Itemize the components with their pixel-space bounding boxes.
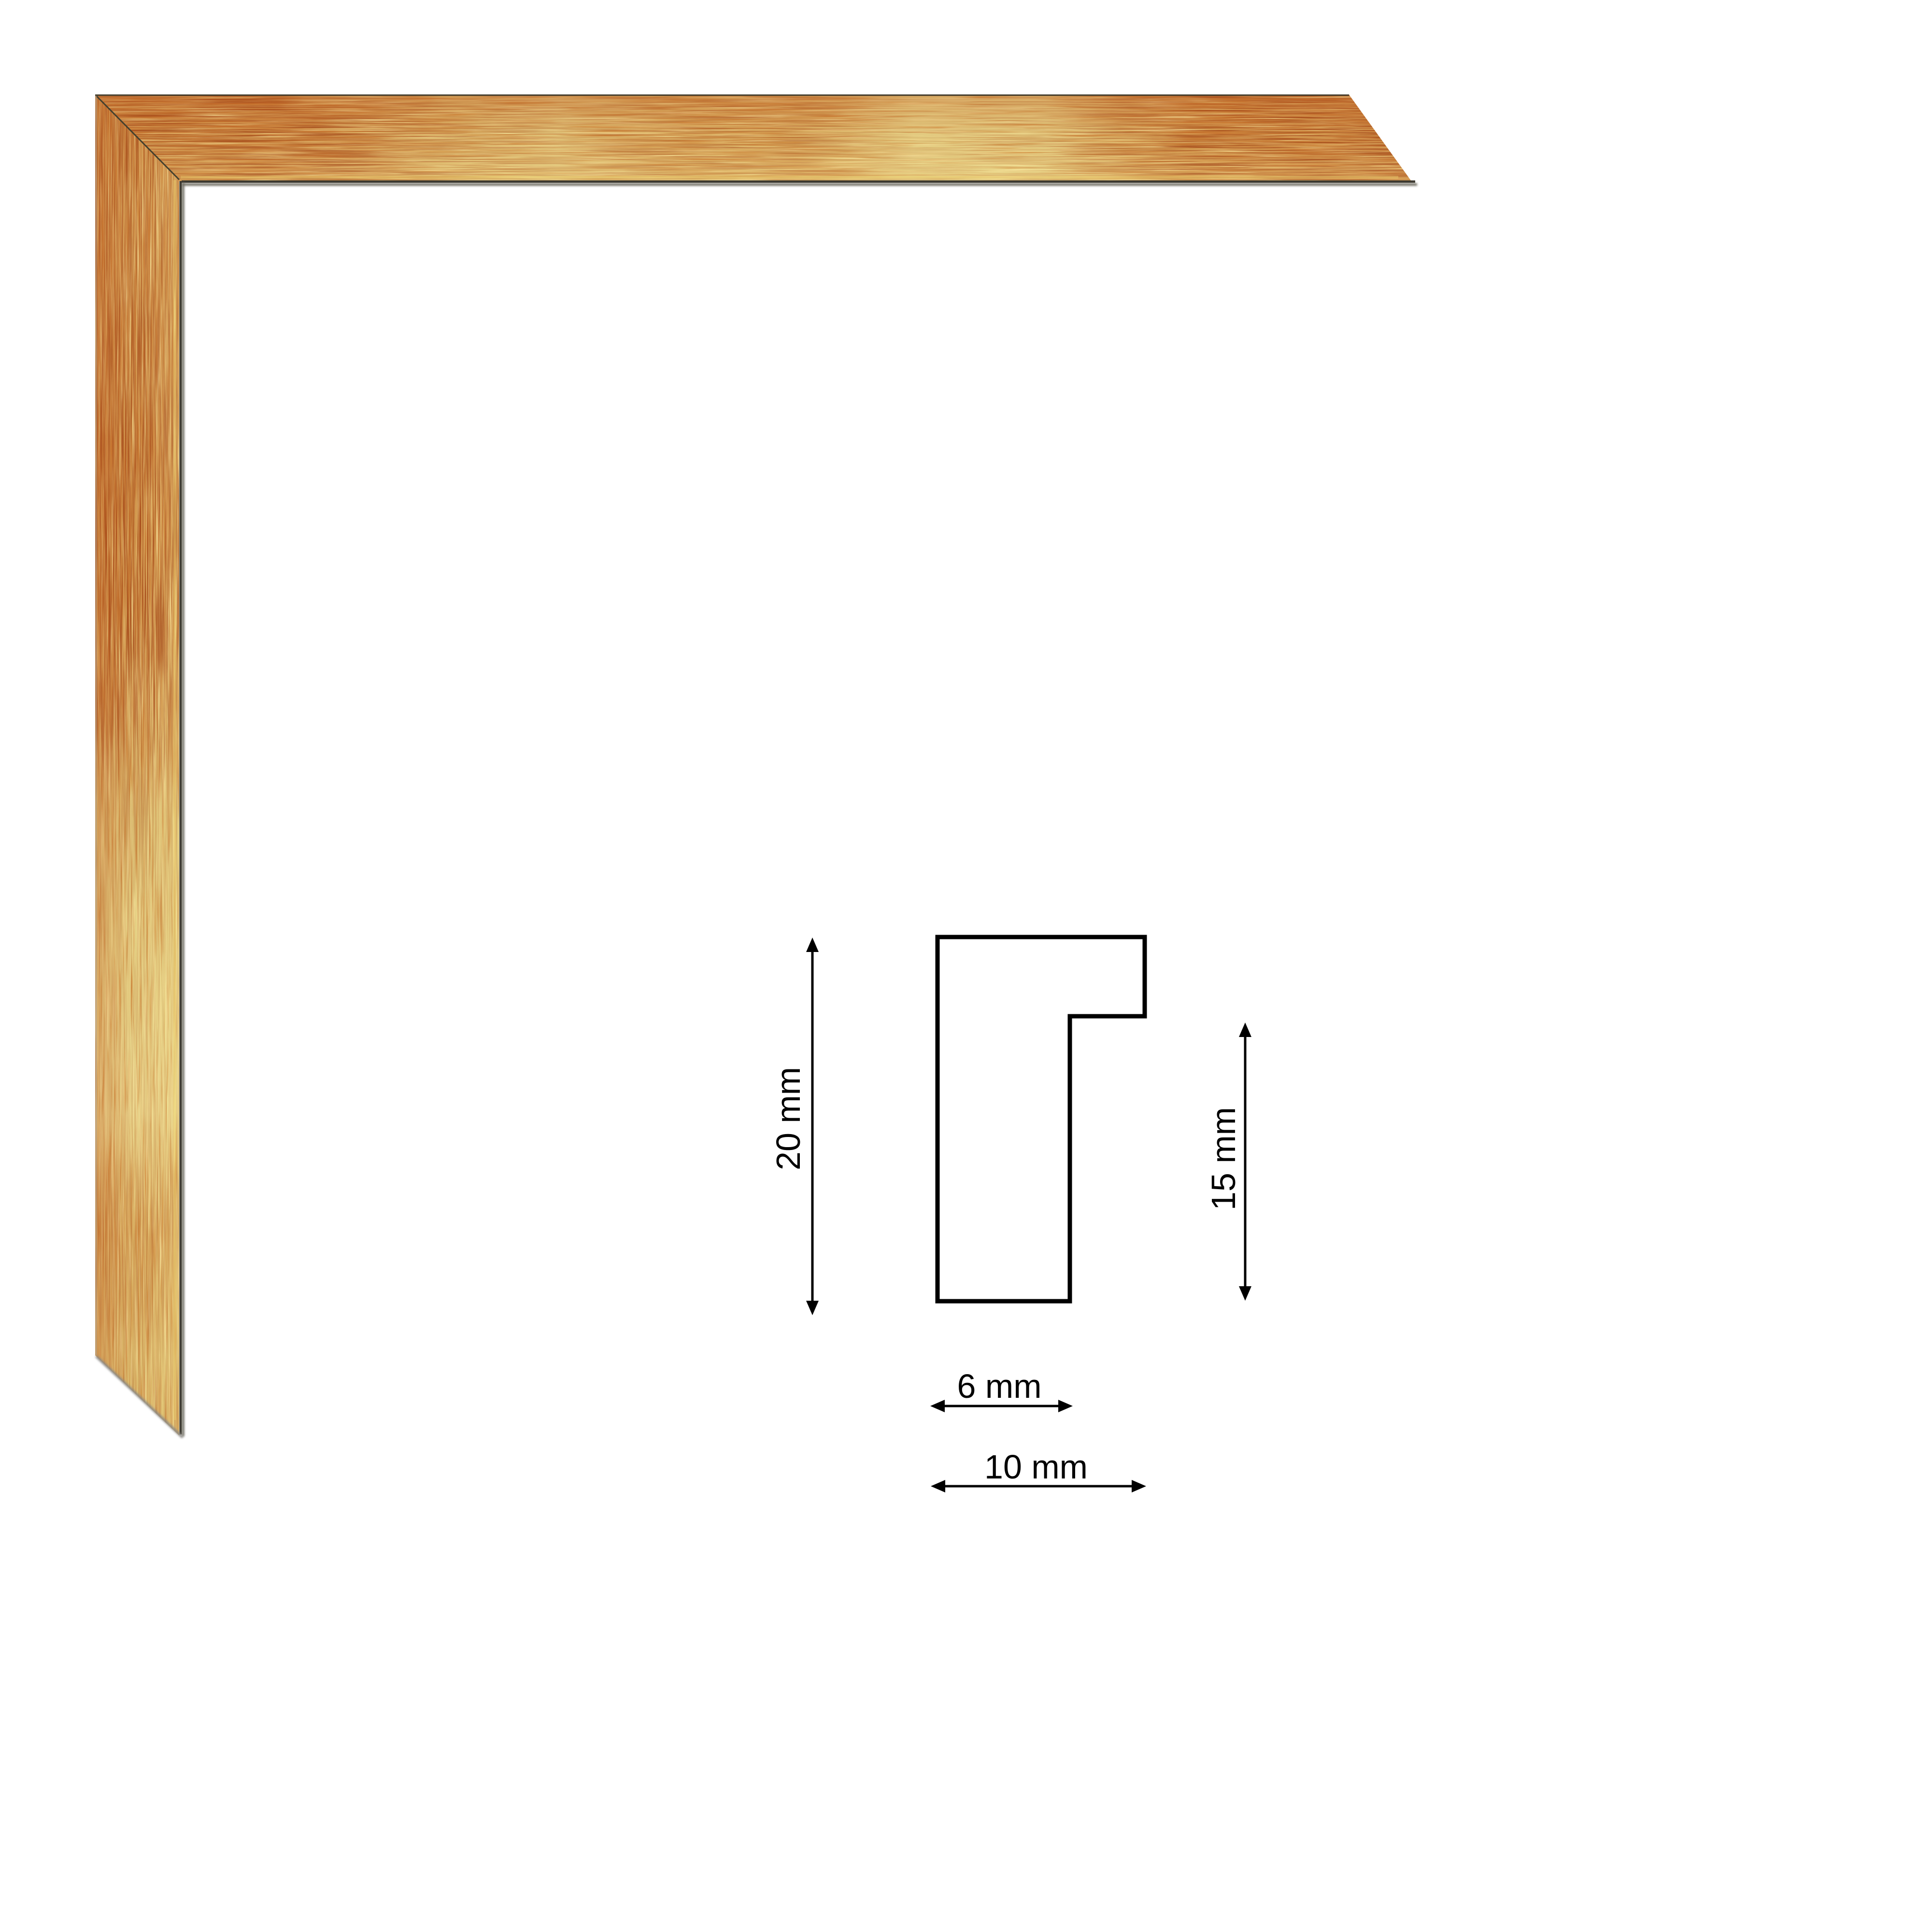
svg-text:20 mm: 20 mm [769, 1067, 807, 1170]
svg-text:15 mm: 15 mm [1205, 1107, 1242, 1210]
svg-text:10 mm: 10 mm [984, 1448, 1088, 1486]
svg-text:6 mm: 6 mm [957, 1367, 1042, 1405]
